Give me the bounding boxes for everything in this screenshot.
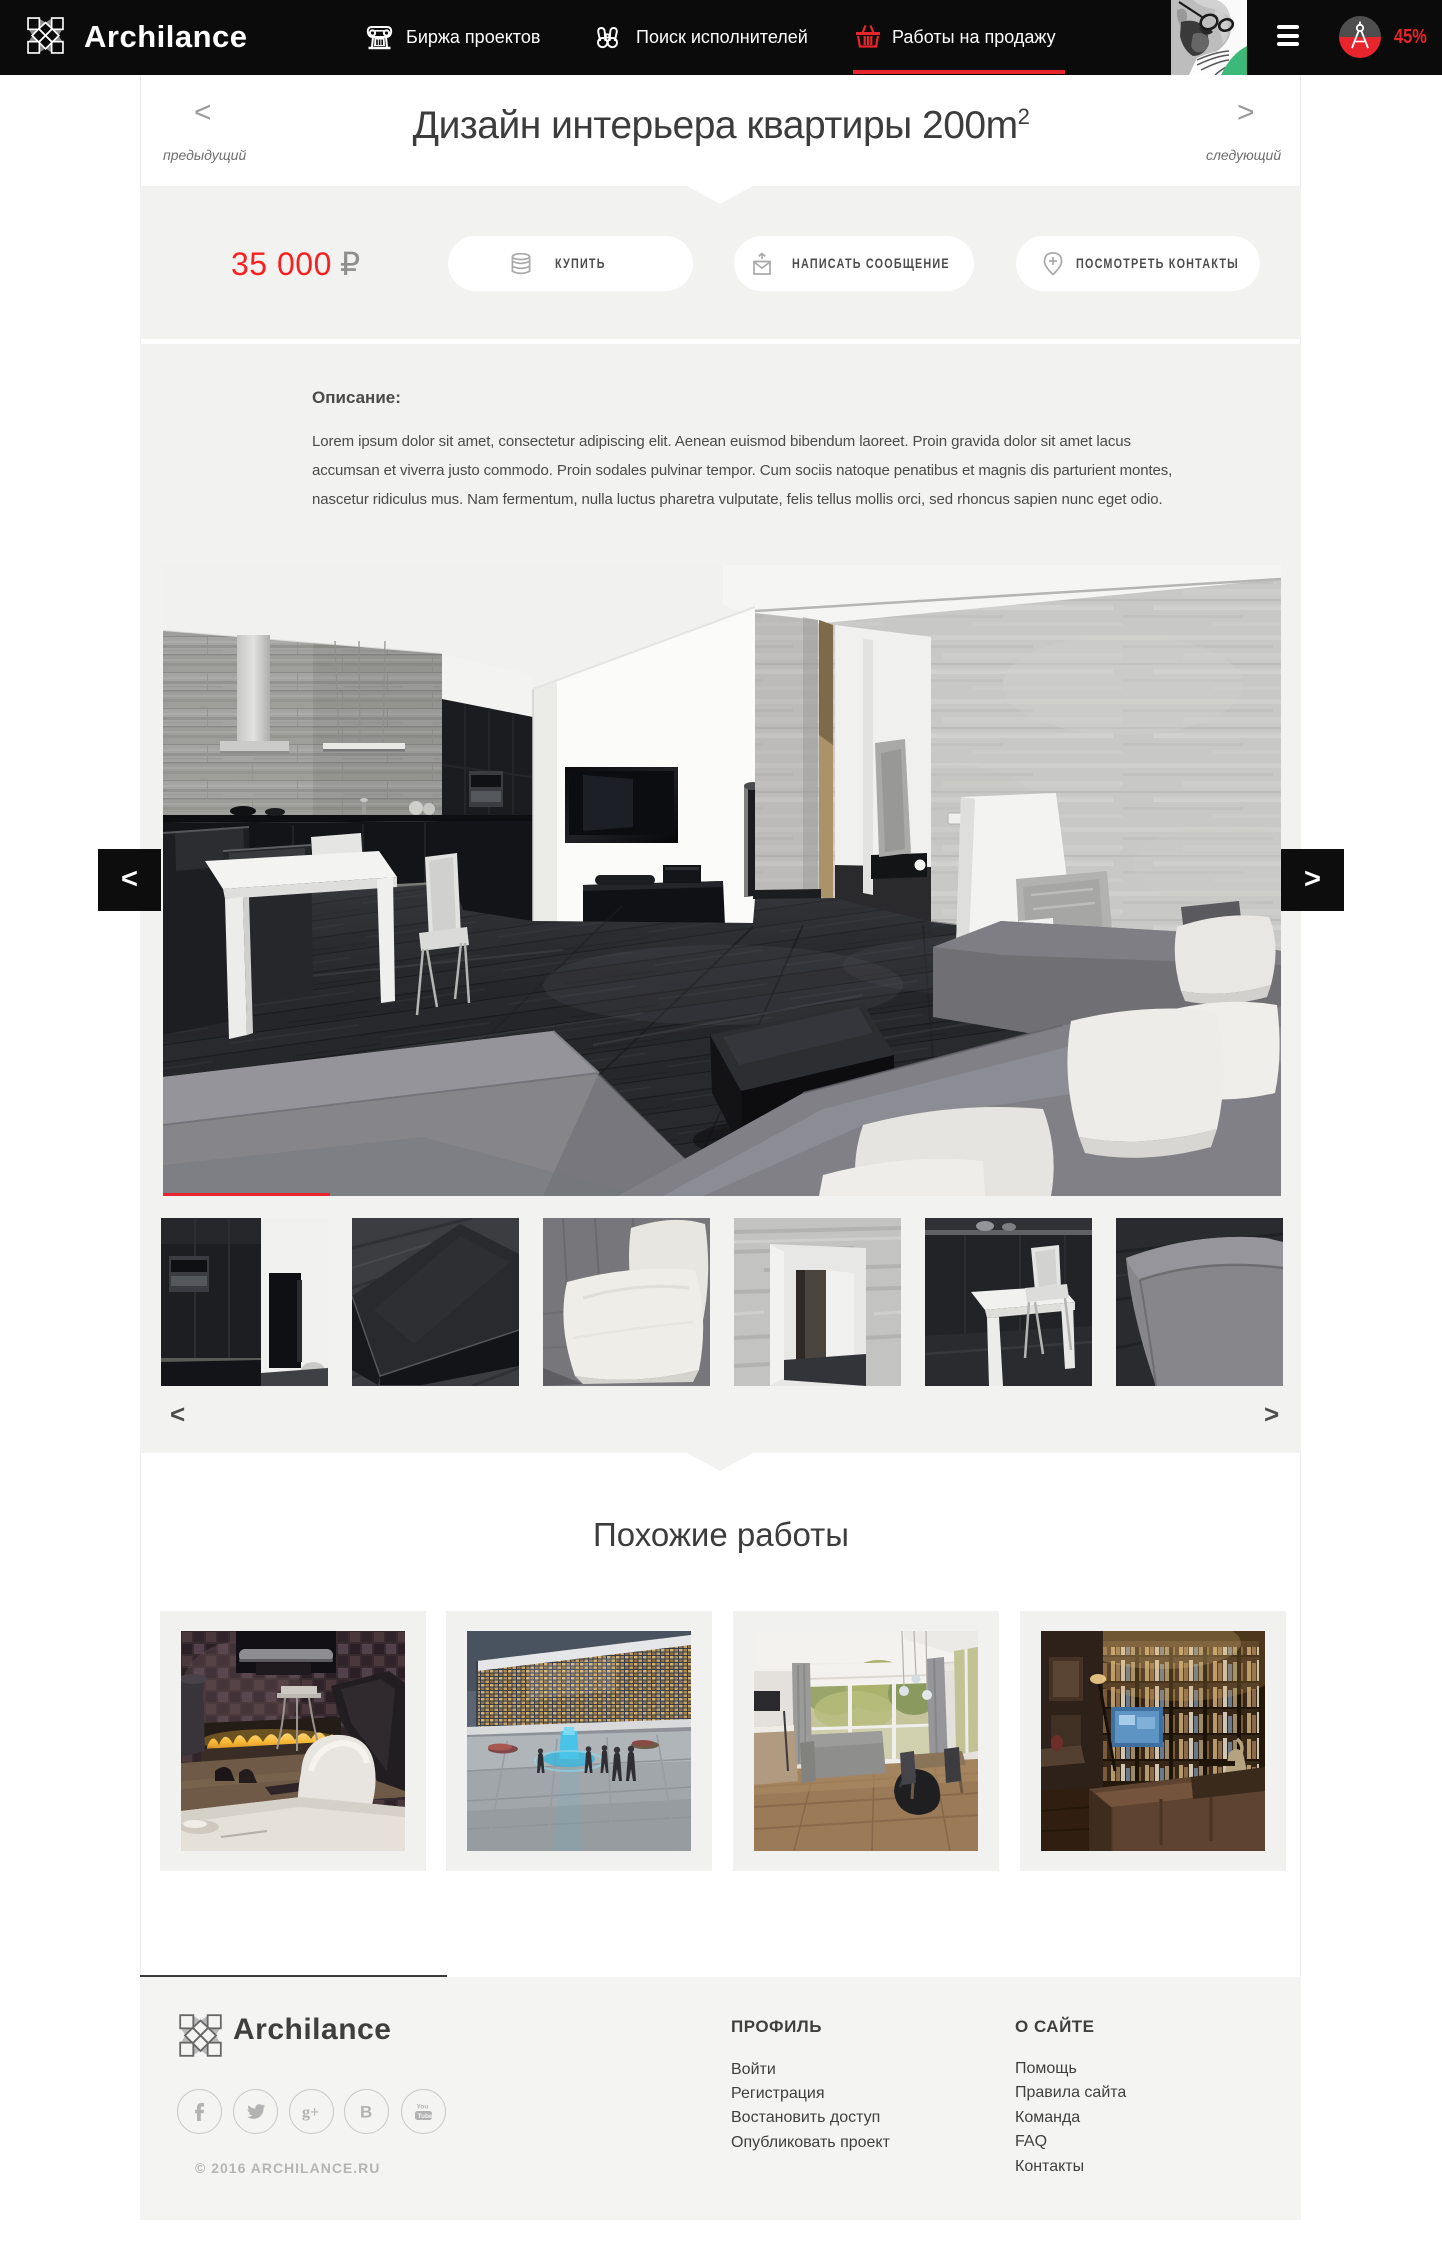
svg-text:You: You [417,2104,429,2111]
svg-text:g+: g+ [302,2104,319,2121]
svg-text:B: B [360,2103,372,2122]
svg-text:Tube: Tube [418,2113,433,2120]
